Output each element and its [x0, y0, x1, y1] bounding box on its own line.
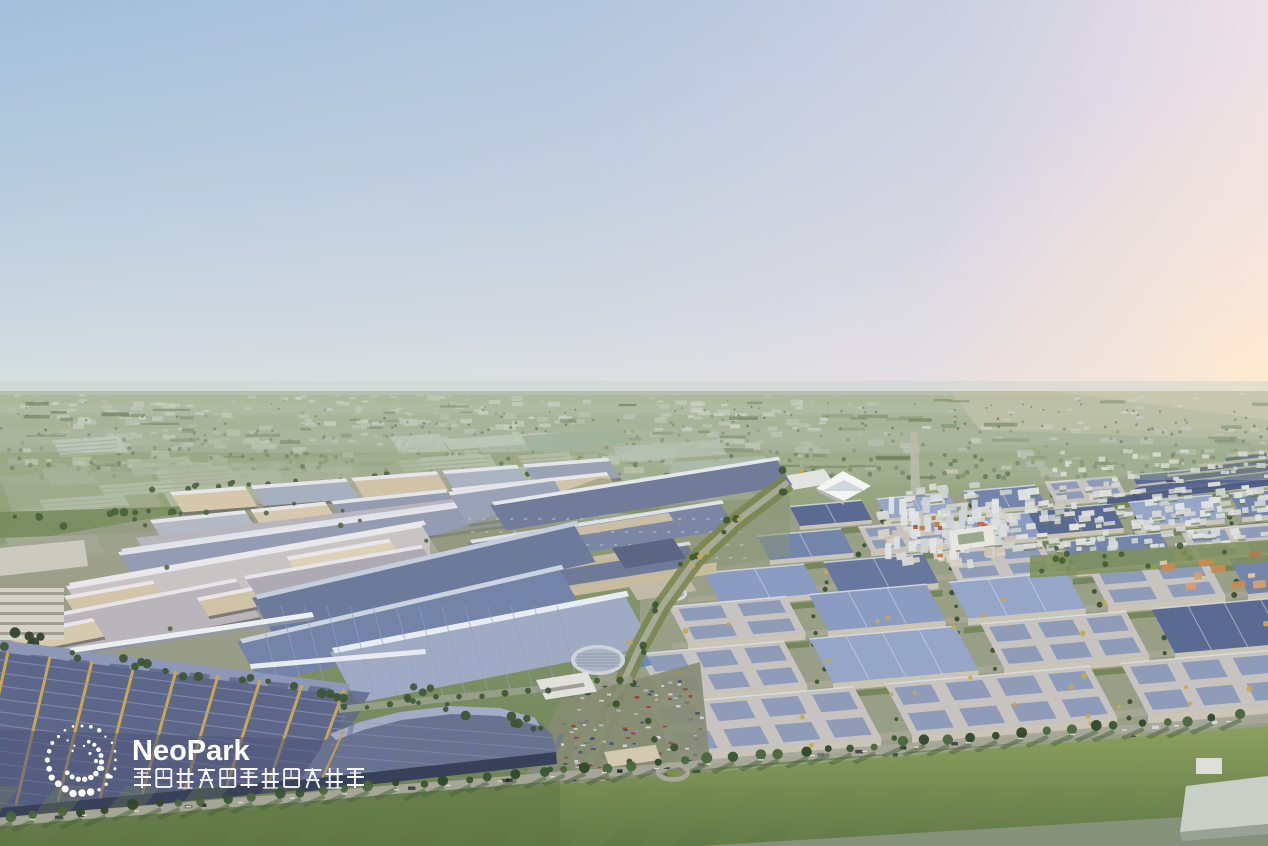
- svg-text:NeoPark: NeoPark: [132, 735, 251, 767]
